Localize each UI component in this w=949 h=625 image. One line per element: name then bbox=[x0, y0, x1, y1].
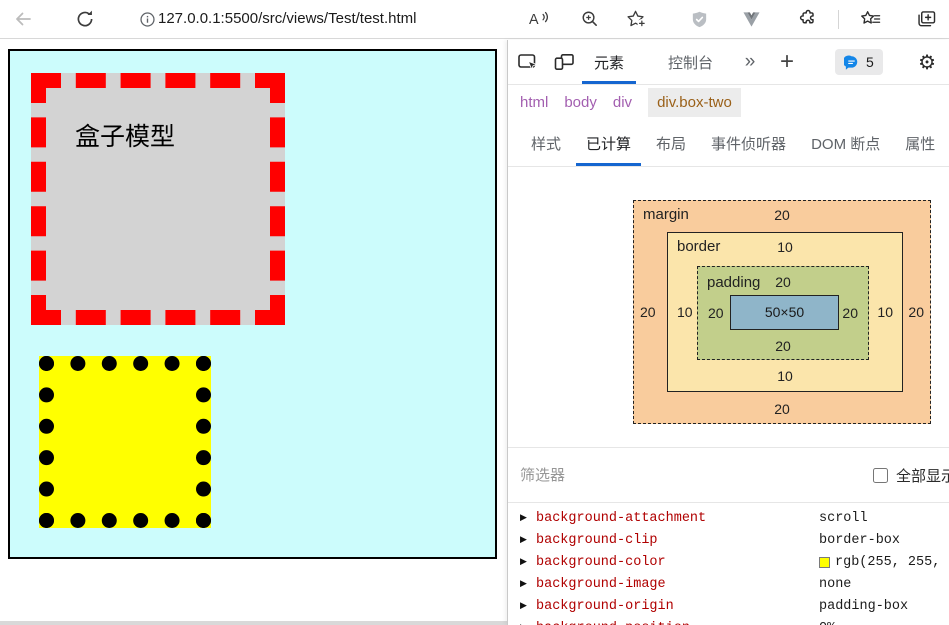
devtools-subtabs: 样式 已计算 布局 事件侦听器 DOM 断点 属性 bbox=[508, 120, 949, 167]
svg-text:A: A bbox=[529, 12, 539, 28]
more-tabs-icon[interactable]: » bbox=[737, 40, 763, 84]
property-name: background-origin bbox=[536, 599, 819, 614]
show-all-option: 全部显示 bbox=[873, 448, 949, 502]
box-model-margin[interactable]: margin 20 20 20 20 border 10 10 10 10 pa… bbox=[633, 200, 931, 424]
subtab-dom-breakpoints[interactable]: DOM 断点 bbox=[801, 120, 890, 166]
browser-window: 127.0.0.1:5500/src/views/Test/test.html … bbox=[0, 0, 949, 625]
toolbar-divider bbox=[838, 10, 839, 29]
dotted-yellow-box bbox=[39, 356, 211, 528]
page-viewport: 盒子模型 bbox=[0, 40, 507, 625]
subtab-styles[interactable]: 样式 bbox=[521, 120, 571, 166]
breadcrumb-div-box-two[interactable]: div.box-two bbox=[648, 88, 741, 117]
border-left-value: 10 bbox=[677, 304, 693, 320]
property-value: 0% bbox=[819, 621, 835, 625]
box-model-demo-box: 盒子模型 bbox=[31, 73, 285, 325]
breadcrumb-body[interactable]: body bbox=[564, 94, 597, 111]
expander-icon[interactable]: ▶ bbox=[520, 513, 536, 523]
property-name: background-clip bbox=[536, 533, 819, 548]
property-name: background-image bbox=[536, 577, 819, 592]
property-row: ▶ background-color rgb(255, 255, bbox=[520, 551, 949, 573]
expander-icon[interactable]: ▶ bbox=[520, 535, 536, 545]
padding-top-value: 20 bbox=[698, 274, 868, 290]
device-toolbar-icon[interactable] bbox=[546, 40, 582, 84]
feedback-count: 5 bbox=[866, 54, 874, 70]
show-all-checkbox[interactable] bbox=[873, 468, 888, 483]
property-name: background-attachment bbox=[536, 511, 819, 526]
expander-icon[interactable]: ▶ bbox=[520, 601, 536, 611]
property-value: none bbox=[819, 577, 851, 592]
property-row: ▶ background-clip border-box bbox=[520, 529, 949, 551]
border-bottom-value: 10 bbox=[668, 368, 902, 384]
computed-pane: margin 20 20 20 20 border 10 10 10 10 pa… bbox=[508, 167, 949, 447]
zoom-icon[interactable] bbox=[580, 9, 599, 28]
box-model-border[interactable]: border 10 10 10 10 padding 20 20 20 20 5… bbox=[667, 232, 903, 392]
property-value: border-box bbox=[819, 533, 900, 548]
property-value: rgb(255, 255, bbox=[819, 555, 940, 570]
property-row: ▶ background-attachment scroll bbox=[520, 507, 949, 529]
property-row: ▶ background-origin padding-box bbox=[520, 595, 949, 617]
property-row: ▶ background-image none bbox=[520, 573, 949, 595]
property-name: background-color bbox=[536, 555, 819, 570]
back-icon[interactable] bbox=[13, 9, 33, 29]
add-tab-icon[interactable]: + bbox=[773, 40, 801, 84]
subtab-computed[interactable]: 已计算 bbox=[576, 120, 641, 166]
filter-input[interactable] bbox=[520, 467, 710, 484]
browser-toolbar: 127.0.0.1:5500/src/views/Test/test.html … bbox=[0, 0, 949, 39]
breadcrumb: html body div div.box-two bbox=[508, 85, 949, 120]
property-name: background-position bbox=[536, 621, 819, 625]
breadcrumb-html[interactable]: html bbox=[520, 94, 548, 111]
page-container: 盒子模型 bbox=[8, 49, 497, 559]
page-horizontal-scrollbar[interactable] bbox=[0, 621, 507, 625]
property-row: ▶ background-position 0% bbox=[520, 617, 949, 625]
box-model-padding[interactable]: padding 20 20 20 20 50×50 bbox=[697, 266, 869, 360]
add-favorite-icon[interactable] bbox=[626, 9, 647, 29]
read-aloud-icon[interactable]: A bbox=[528, 9, 549, 29]
expander-icon[interactable]: ▶ bbox=[520, 579, 536, 589]
subtab-event-listeners[interactable]: 事件侦听器 bbox=[701, 120, 796, 166]
tab-elements[interactable]: 元素 bbox=[582, 40, 636, 84]
expander-icon[interactable]: ▶ bbox=[520, 557, 536, 567]
show-all-label: 全部显示 bbox=[896, 465, 949, 486]
extensions-icon[interactable] bbox=[797, 9, 817, 30]
margin-left-value: 20 bbox=[640, 304, 656, 320]
computed-properties-list: ▶ background-attachment scroll ▶ backgro… bbox=[508, 503, 949, 625]
favorites-icon[interactable] bbox=[860, 9, 881, 29]
feedback-badge[interactable]: 5 bbox=[835, 49, 883, 75]
tab-console[interactable]: 控制台 bbox=[656, 40, 725, 84]
vue-devtools-icon[interactable] bbox=[742, 11, 761, 28]
url-text[interactable]: 127.0.0.1:5500/src/views/Test/test.html bbox=[158, 10, 416, 27]
devtools-tabbar: 元素 控制台 » + 5 ⚙ bbox=[508, 40, 949, 85]
info-icon[interactable] bbox=[139, 11, 156, 28]
breadcrumb-div[interactable]: div bbox=[613, 94, 632, 111]
computed-filter-bar: 全部显示 bbox=[508, 447, 949, 503]
padding-bottom-value: 20 bbox=[698, 338, 868, 354]
margin-bottom-value: 20 bbox=[634, 401, 930, 417]
border-top-value: 10 bbox=[668, 239, 902, 255]
chat-bubble-icon bbox=[844, 55, 859, 70]
margin-right-value: 20 bbox=[908, 304, 924, 320]
inspect-element-icon[interactable] bbox=[510, 40, 546, 84]
property-value: scroll bbox=[819, 511, 868, 526]
shield-extension-icon[interactable] bbox=[690, 10, 709, 29]
refresh-icon[interactable] bbox=[75, 9, 95, 29]
box-model-content[interactable]: 50×50 bbox=[730, 295, 839, 330]
gear-icon[interactable]: ⚙ bbox=[918, 52, 936, 72]
color-swatch bbox=[819, 557, 830, 568]
margin-top-value: 20 bbox=[634, 207, 930, 223]
padding-left-value: 20 bbox=[708, 305, 724, 321]
property-value: padding-box bbox=[819, 599, 908, 614]
subtab-layout[interactable]: 布局 bbox=[646, 120, 696, 166]
property-value-text: rgb(255, 255, bbox=[835, 555, 940, 570]
box-model-text: 盒子模型 bbox=[75, 124, 270, 152]
subtab-properties[interactable]: 属性 bbox=[895, 120, 945, 166]
border-right-value: 10 bbox=[877, 304, 893, 320]
devtools-panel: 元素 控制台 » + 5 ⚙ html body div div.box-two… bbox=[507, 40, 949, 625]
collections-icon[interactable] bbox=[916, 9, 937, 29]
padding-right-value: 20 bbox=[842, 305, 858, 321]
